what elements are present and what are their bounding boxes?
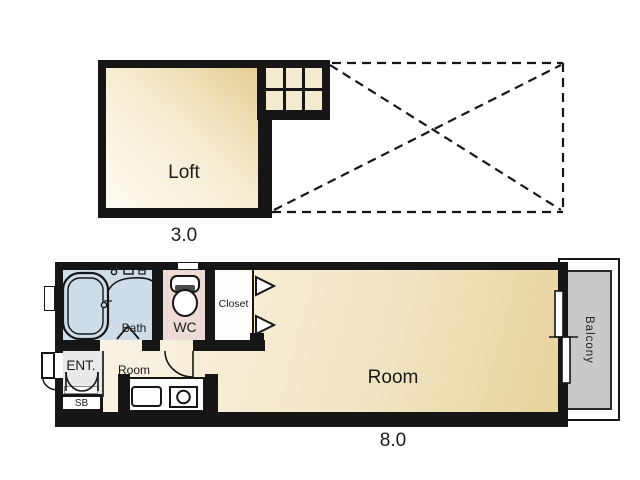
bath-room-label: Bath Room bbox=[109, 293, 159, 405]
floor-plan: Loft 3.0 Balcony SB bbox=[0, 0, 640, 480]
loft-wall-left bbox=[98, 60, 106, 218]
hall-wall-c bbox=[193, 340, 265, 351]
bath-label-line1: Bath bbox=[109, 321, 159, 335]
wc-label: WC bbox=[164, 320, 206, 336]
loft-wall-top bbox=[98, 60, 330, 68]
balcony: Balcony bbox=[566, 270, 612, 410]
stair-cell bbox=[266, 91, 283, 111]
shoe-box-label: SB bbox=[75, 398, 88, 409]
stair-cell bbox=[286, 91, 303, 111]
entrance-label: ENT. bbox=[58, 358, 104, 373]
bath-label-line2: Room bbox=[109, 363, 159, 377]
void-diagonal bbox=[330, 65, 561, 210]
room-area-value: 8.0 bbox=[328, 430, 458, 451]
closet-label: Closet bbox=[211, 299, 256, 311]
stair-cell bbox=[305, 68, 322, 88]
balcony-label: Balcony bbox=[583, 316, 595, 364]
kitchen-pillar-right bbox=[205, 374, 218, 412]
loft-wall-below-stairs bbox=[257, 110, 330, 120]
lower-wall-bottom bbox=[55, 412, 568, 427]
loft-wall-right bbox=[258, 110, 272, 218]
stair-cell bbox=[266, 68, 283, 88]
entrance-door-leaf bbox=[42, 353, 54, 378]
hall-wall-a bbox=[55, 340, 100, 351]
loft-wall-stairs-left bbox=[257, 68, 266, 110]
room-label: Room 8.0 bbox=[328, 325, 458, 480]
lower-wall-right bbox=[558, 262, 568, 412]
bath-window bbox=[44, 286, 55, 311]
wc-window-opening bbox=[178, 263, 198, 269]
loft-stairs-grid bbox=[266, 68, 322, 110]
lower-wall-top bbox=[55, 262, 568, 270]
shoe-box: SB bbox=[60, 394, 103, 412]
stair-cell bbox=[305, 91, 322, 111]
loft-wall-stairs-right bbox=[322, 60, 330, 120]
loft-area-value: 3.0 bbox=[139, 225, 229, 246]
room-name: Room bbox=[328, 367, 458, 388]
loft-name: Loft bbox=[139, 162, 229, 183]
stair-cell bbox=[286, 68, 303, 88]
entrance-step bbox=[64, 386, 98, 394]
